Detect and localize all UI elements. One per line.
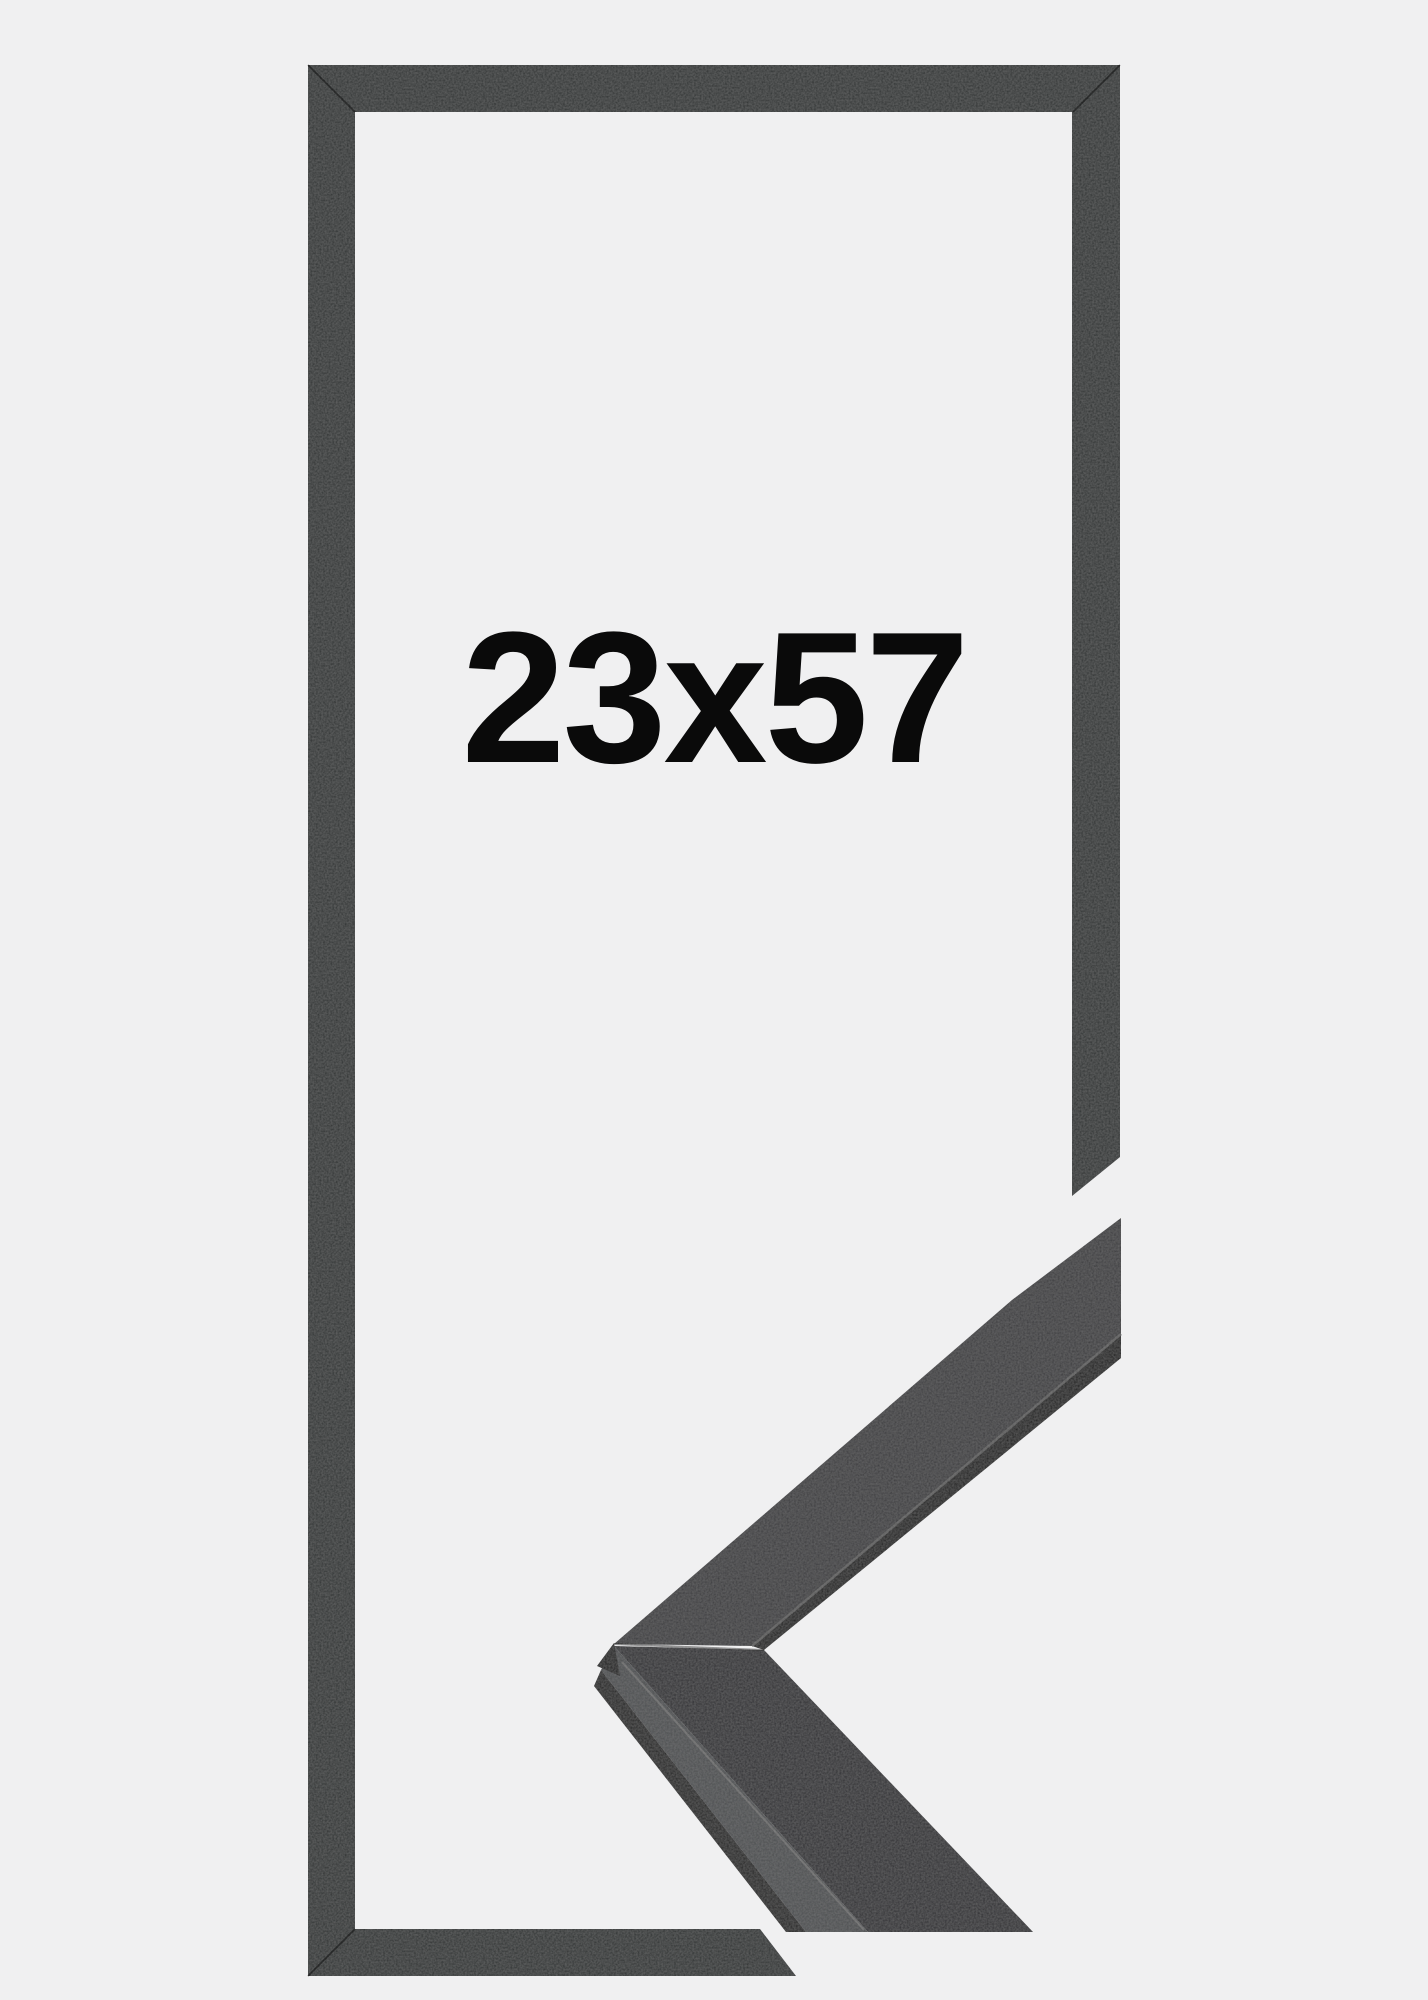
product-image-frame-23x57: 23x57 [0,0,1428,2000]
size-label: 23x57 [461,593,966,802]
